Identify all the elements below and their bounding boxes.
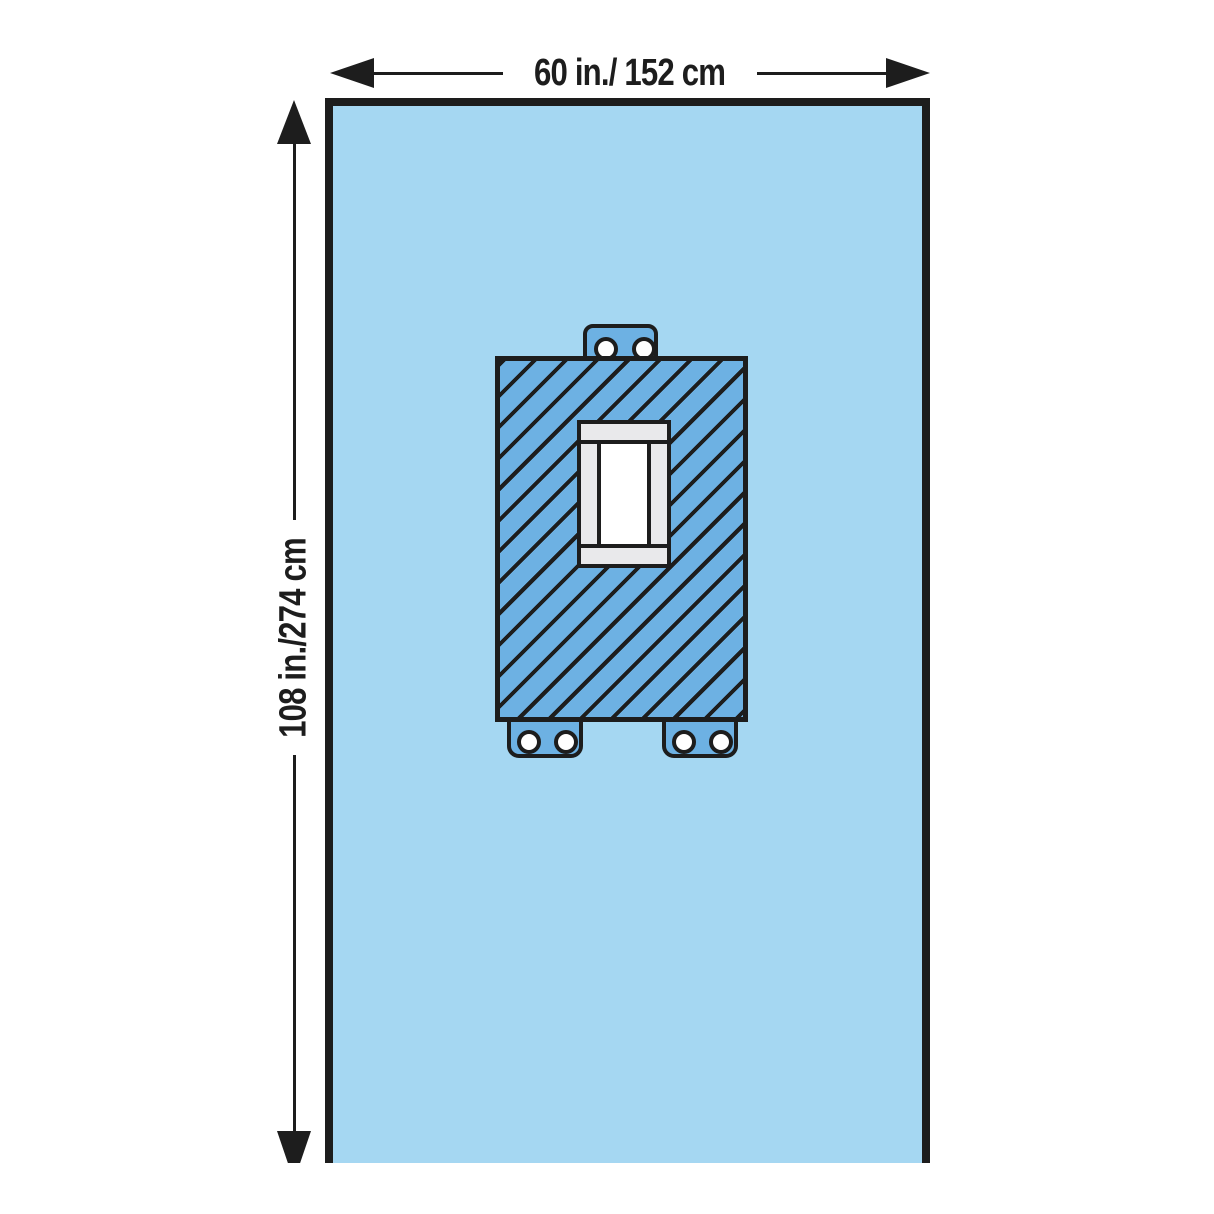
reinforcement-patch <box>495 356 748 722</box>
dimension-line <box>374 72 503 75</box>
arrow-left-icon <box>330 58 374 88</box>
dimension-line <box>293 755 296 1131</box>
height-dimension: 108 in./274 cm <box>271 100 317 1163</box>
tab-hole <box>517 730 541 754</box>
arrow-right-icon <box>886 58 930 88</box>
dimension-line <box>757 72 886 75</box>
surgical-drape-diagram: 60 in./ 152 cm 108 in./274 cm <box>0 0 1214 1214</box>
fenestration-frame-line <box>647 444 651 544</box>
arrow-up-icon <box>277 100 311 144</box>
dimension-line <box>293 144 296 520</box>
width-dimension: 60 in./ 152 cm <box>330 51 930 95</box>
tab-hole <box>672 730 696 754</box>
arrow-down-icon <box>277 1131 311 1163</box>
height-label: 108 in./274 cm <box>273 538 316 738</box>
width-label: 60 in./ 152 cm <box>534 52 725 95</box>
fenestration-window <box>601 444 647 544</box>
fenestration-frame-line <box>581 544 667 548</box>
fenestration-frame <box>577 420 671 568</box>
tab-hole <box>554 730 578 754</box>
height-label-slot: 108 in./274 cm <box>271 520 317 755</box>
tab-hole <box>709 730 733 754</box>
